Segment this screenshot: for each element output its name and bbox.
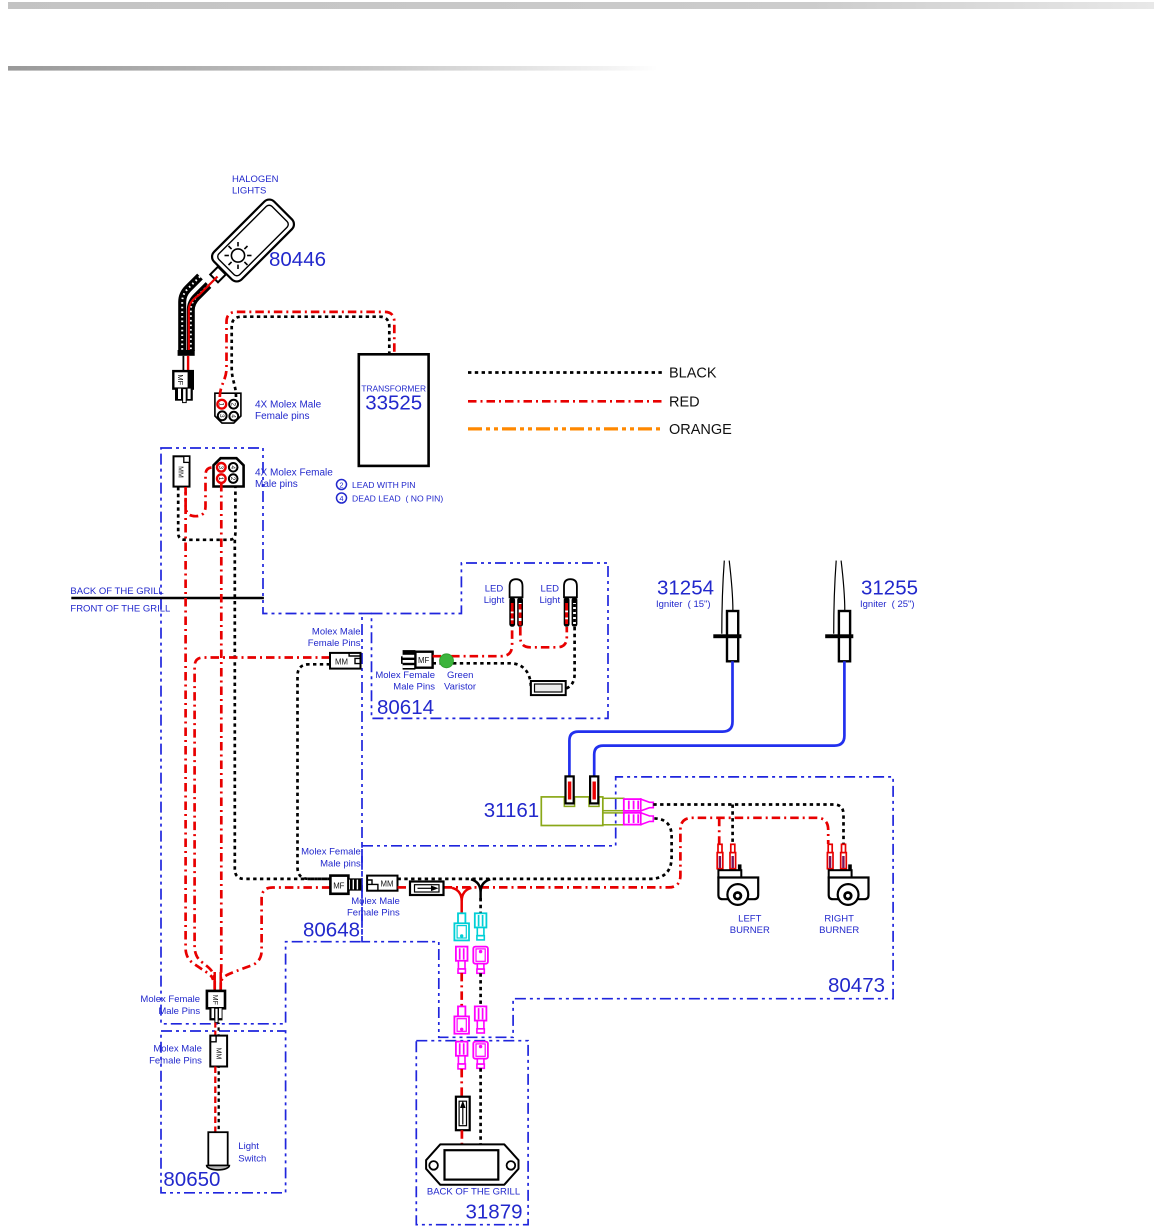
svg-text:Light: Light [238,1141,259,1152]
svg-text:Switch: Switch [238,1153,266,1164]
svg-text:BACK OF THE GRILL: BACK OF THE GRILL [427,1186,520,1197]
svg-text:31254: 31254 [657,577,714,600]
svg-text:HALOGEN: HALOGEN [232,174,279,185]
svg-text:RIGHT: RIGHT [824,913,854,924]
svg-text:3: 3 [218,414,225,418]
svg-text:2: 2 [229,402,236,406]
svg-text:MM: MM [214,1048,221,1060]
svg-text:MF: MF [176,374,185,385]
svg-text:LED: LED [485,584,504,595]
svg-text:33525: 33525 [365,392,422,415]
svg-text:4: 4 [230,414,237,418]
svg-text:4: 4 [339,494,343,503]
svg-text:MM: MM [335,657,348,666]
svg-text:1: 1 [218,402,225,406]
svg-text:Male Pins: Male Pins [393,682,435,693]
svg-text:Igniter ( 25"): Igniter ( 25") [860,599,915,610]
svg-text:Molex Male: Molex Male [153,1044,202,1055]
svg-text:LIGHTS: LIGHTS [232,186,266,197]
svg-text:MF: MF [211,995,218,1005]
svg-text:Varistor: Varistor [444,682,476,693]
svg-text:MF: MF [418,656,429,665]
svg-text:MF: MF [333,881,344,890]
svg-text:80446: 80446 [269,248,326,271]
svg-text:Molex Male: Molex Male [351,896,400,907]
svg-text:4X Molex Male: 4X Molex Male [255,399,322,410]
svg-text:LED: LED [541,584,560,595]
svg-text:80650: 80650 [163,1168,220,1191]
svg-text:BLACK: BLACK [669,366,717,382]
svg-text:80614: 80614 [377,696,434,719]
svg-text:80648: 80648 [303,919,360,942]
svg-text:31879: 31879 [466,1201,523,1224]
svg-text:BACK OF THE GRILL: BACK OF THE GRILL [70,586,163,597]
svg-text:Female Pins: Female Pins [308,638,361,649]
svg-text:31255: 31255 [861,577,918,600]
svg-text:Light: Light [484,595,505,606]
svg-text:1: 1 [217,477,224,481]
svg-text:Molex Female: Molex Female [375,670,435,681]
svg-text:2: 2 [339,480,343,489]
svg-text:80473: 80473 [828,974,885,997]
svg-text:RED: RED [669,395,700,411]
svg-text:2: 2 [229,477,236,481]
svg-text:DEAD LEAD ( NO PIN): DEAD LEAD ( NO PIN) [352,494,443,504]
svg-text:FRONT OF THE GRILL: FRONT OF THE GRILL [70,604,170,615]
svg-text:Light: Light [539,595,560,606]
svg-text:ORANGE: ORANGE [669,422,732,438]
svg-text:4: 4 [229,465,236,469]
svg-text:BURNER: BURNER [819,925,859,936]
svg-text:BURNER: BURNER [730,925,770,936]
svg-text:Green: Green [447,670,473,681]
svg-text:4X Molex Female: 4X Molex Female [255,468,333,479]
svg-text:Male Pins: Male Pins [158,1006,200,1017]
svg-text:LEAD WITH PIN: LEAD WITH PIN [352,480,416,490]
svg-text:Female pins: Female pins [255,411,309,422]
svg-text:MM: MM [381,880,394,889]
svg-text:Molex Male: Molex Male [312,627,361,638]
svg-text:Molex Female: Molex Female [301,847,361,858]
svg-text:31161: 31161 [484,799,539,822]
svg-text:Female Pins: Female Pins [149,1056,202,1067]
svg-text:Male pins: Male pins [320,859,361,870]
svg-text:3: 3 [217,465,224,469]
svg-text:MM: MM [177,466,184,478]
svg-text:Igniter ( 15"): Igniter ( 15") [656,599,711,610]
svg-text:Female Pins: Female Pins [347,908,400,919]
svg-text:LEFT: LEFT [738,913,761,924]
svg-text:Male pins: Male pins [255,479,298,490]
svg-text:Molex Female: Molex Female [140,994,200,1005]
